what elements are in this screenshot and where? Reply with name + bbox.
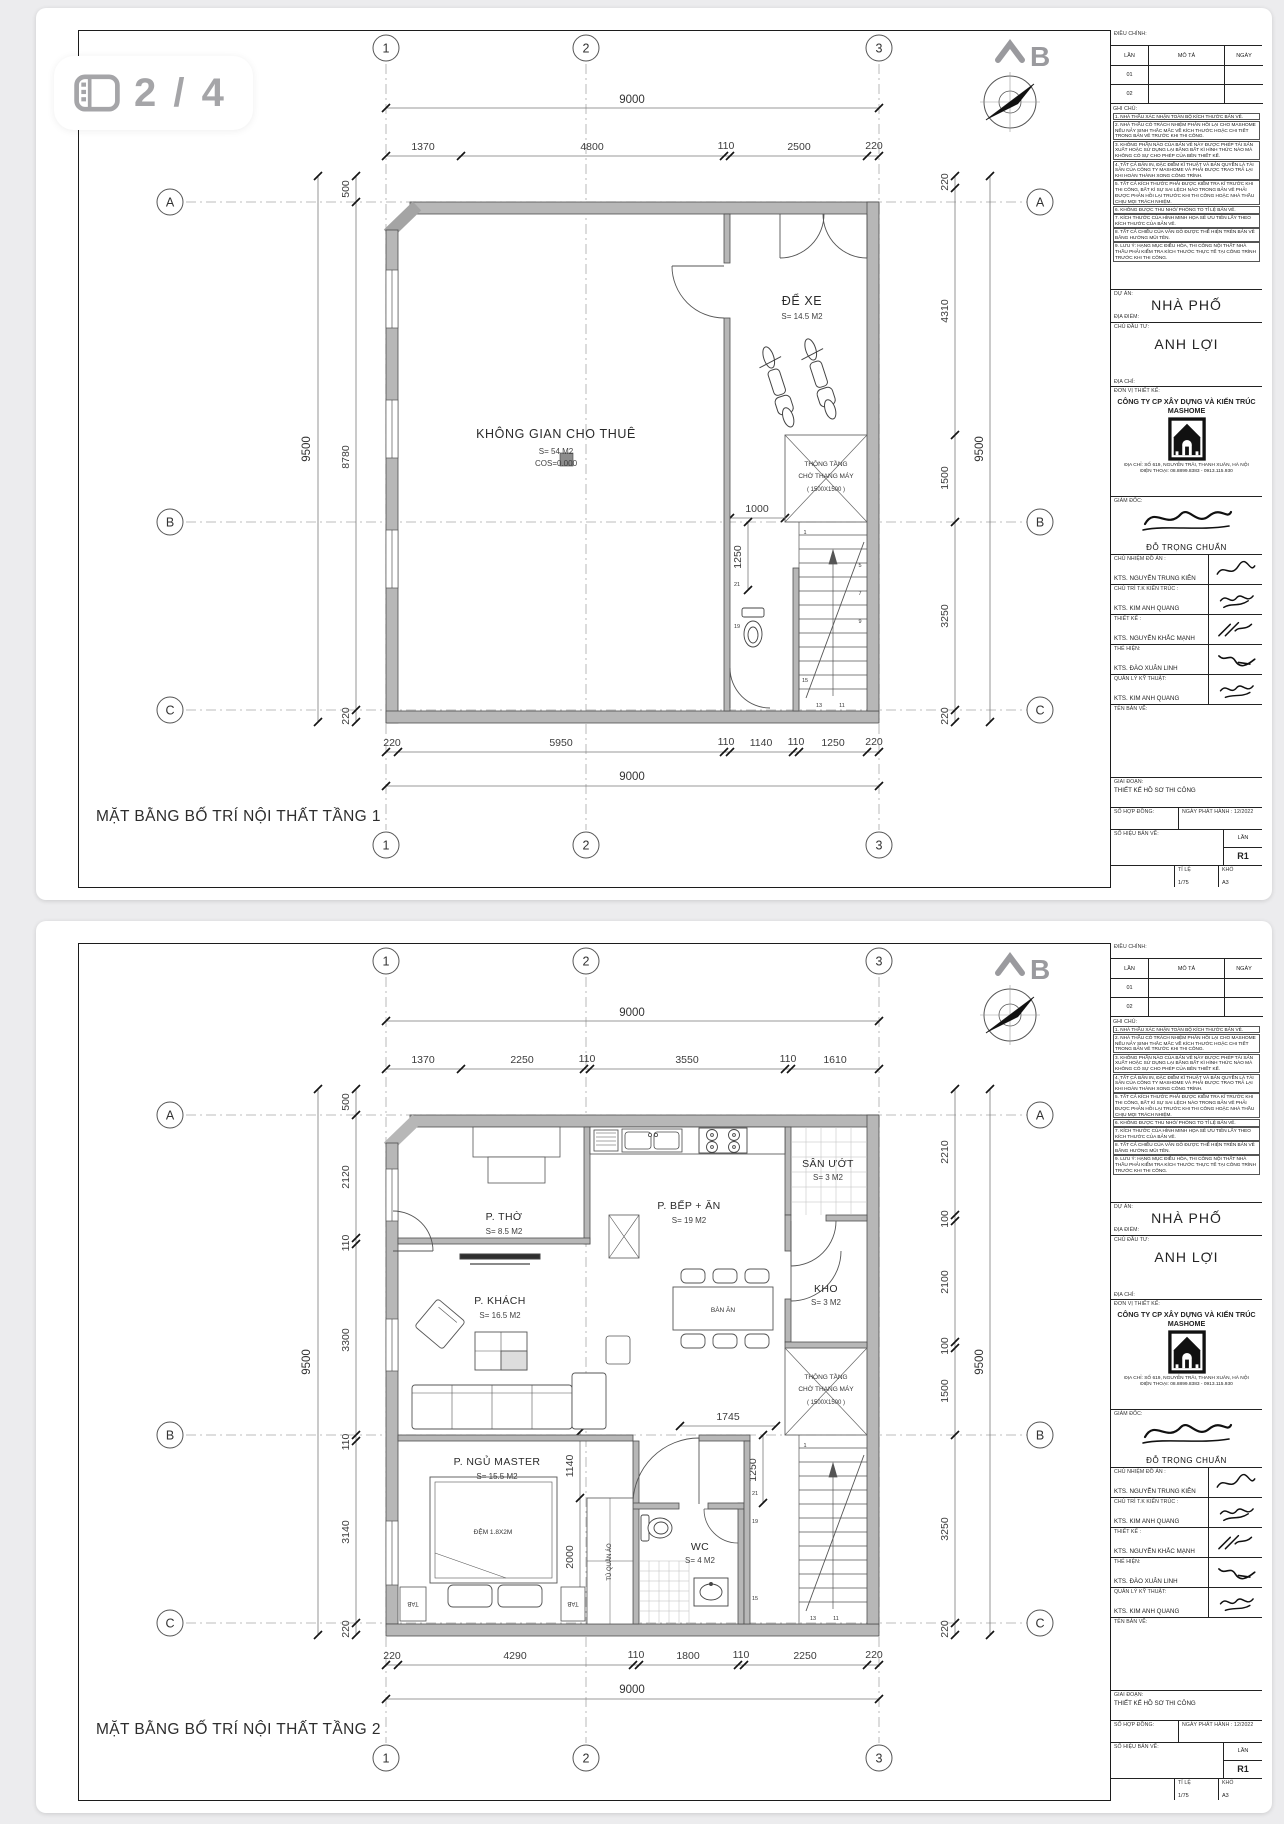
svg-text:S= 8.5 M2: S= 8.5 M2: [486, 1227, 523, 1236]
staff-role: THIẾT KẾ :: [1111, 615, 1208, 622]
director-section: GIÁM ĐỐC: ĐỖ TRỌNG CHUẨN: [1111, 1410, 1262, 1468]
drawing-no-label: SỐ HIỆU BẢN VẼ:: [1111, 830, 1224, 865]
dimension-labels: 9000 1370 4800 110 2500 220 9500 500 878…: [301, 94, 986, 783]
svg-text:A: A: [1036, 196, 1045, 210]
svg-text:B: B: [1036, 1429, 1044, 1443]
north-label: B: [1030, 41, 1050, 72]
rev-col-ngay: NGÀY: [1225, 46, 1263, 66]
svg-text:1250: 1250: [732, 545, 744, 569]
floor-plan-tang-2: 1 2 3 1 2 3 A B C A B C 9000 1370: [36, 921, 1272, 1813]
svg-text:7: 7: [858, 591, 861, 597]
rev-cell: [1149, 66, 1225, 85]
pages-icon: [74, 74, 120, 112]
svg-text:9500: 9500: [301, 436, 313, 462]
svg-text:A: A: [166, 196, 175, 210]
stairs: [799, 522, 867, 711]
staff-row: THIẾT KẾ : KTS. NGUYỄN KHẮC MẠNH: [1111, 615, 1262, 645]
mashome-logo-icon: [1168, 417, 1206, 461]
director-name: ĐỖ TRỌNG CHUẨN: [1111, 1456, 1262, 1465]
page-indicator[interactable]: 2 / 4: [54, 56, 253, 130]
title-block: ĐIỀU CHỈNH: LẦN MÔ TẢ NGÀY 01 02 GHI CHÚ…: [1110, 943, 1262, 1801]
svg-text:2: 2: [583, 839, 590, 853]
staff-signature: [1214, 679, 1258, 701]
svg-text:C: C: [1035, 1617, 1044, 1631]
rev-label: LẦN: [1224, 1743, 1262, 1761]
grid-bubbles: [157, 35, 1053, 858]
svg-text:1: 1: [803, 1443, 806, 1449]
paper-value: A3: [1222, 1793, 1229, 1799]
mashome-logo-icon: [1168, 1330, 1206, 1374]
svg-text:A: A: [1036, 1109, 1045, 1123]
designer-phone: ĐIỆN THOẠI: 08.8899.8383 - 0913.115.930: [1111, 469, 1262, 475]
director-section: GIÁM ĐỐC: ĐỖ TRỌNG CHUẨN: [1111, 497, 1262, 555]
svg-text:2: 2: [583, 1752, 590, 1766]
svg-text:3250: 3250: [939, 1517, 951, 1541]
project-label: DỰ ÁN:: [1111, 1203, 1262, 1210]
revision-table: LẦN MÔ TẢ NGÀY 01 02: [1111, 959, 1262, 1017]
drawing-name-label: TÊN BẢN VẼ:: [1111, 705, 1262, 712]
director-label: GIÁM ĐỐC:: [1111, 1410, 1262, 1417]
north-label: B: [1030, 954, 1050, 985]
svg-text:1500: 1500: [939, 1379, 951, 1403]
tv-console: [460, 1254, 540, 1264]
svg-text:CHỜ THANG MÁY: CHỜ THANG MÁY: [798, 1384, 854, 1393]
rev-cell: [1225, 979, 1263, 998]
svg-text:220: 220: [939, 173, 951, 191]
svg-text:KHO: KHO: [814, 1283, 838, 1295]
scale-label: TỈ LỆ: [1175, 1779, 1218, 1786]
note-item: 3. KHÔNG PHẦN NÀO CỦA BẢN VẼ NÀY ĐƯỢC PH…: [1113, 141, 1260, 160]
stage-section: GIAI ĐOẠN: THIẾT KẾ HỒ SƠ THI CÔNG: [1111, 1691, 1262, 1721]
svg-text:1610: 1610: [823, 1054, 847, 1066]
scale-row: TỈ LỆ 1/75 KHỔ A3: [1111, 1779, 1262, 1800]
svg-text:19: 19: [734, 624, 740, 630]
staff-name: KTS. KIM ANH QUANG: [1114, 1518, 1179, 1525]
svg-text:4800: 4800: [580, 141, 604, 153]
north-compass: B: [980, 954, 1050, 1045]
svg-text:220: 220: [865, 140, 883, 152]
svg-text:3: 3: [876, 955, 883, 969]
svg-text:ĐỂ XE: ĐỂ XE: [782, 293, 823, 308]
stairs: [799, 1435, 867, 1624]
staff-name: KTS. KIM ANH QUANG: [1114, 605, 1179, 612]
rev-cell: [1225, 998, 1263, 1017]
staff-role: CHỦ TRÌ T.K KIẾN TRÚC :: [1111, 1498, 1208, 1505]
sheet-page-1: 1 2 3 1 2 3 A B C A B C 9000: [36, 8, 1272, 900]
svg-text:TAB: TAB: [407, 1600, 418, 1606]
project-name: NHÀ PHỐ: [1111, 1210, 1262, 1226]
svg-text:THÔNG TẦNG: THÔNG TẦNG: [804, 1371, 847, 1381]
staff-signature: [1214, 1562, 1258, 1584]
svg-text:2250: 2250: [510, 1054, 534, 1066]
svg-text:TAB: TAB: [567, 1600, 578, 1606]
title-block: ĐIỀU CHỈNH: LẦN MÔ TẢ NGÀY 01 02 GHI CHÚ…: [1110, 30, 1262, 888]
side-table: [606, 1336, 630, 1364]
revision-header: ĐIỀU CHỈNH:: [1111, 943, 1262, 950]
tile-grid: [791, 1127, 867, 1215]
room-labels: KHÔNG GIAN CHO THUÊ S= 54 M2 COS=0.000 Đ…: [476, 293, 854, 493]
stage-section: GIAI ĐOẠN: THIẾT KẾ HỒ SƠ THI CÔNG: [1111, 778, 1262, 808]
staff-role: THỂ HIỆN:: [1111, 1558, 1208, 1565]
scale-label: TỈ LỆ: [1175, 866, 1218, 873]
svg-text:13: 13: [816, 703, 822, 709]
svg-text:100: 100: [939, 1210, 951, 1228]
svg-text:1: 1: [383, 1752, 390, 1766]
svg-text:2: 2: [583, 955, 590, 969]
svg-text:220: 220: [939, 1620, 951, 1638]
wc-tiles: [639, 1561, 689, 1624]
svg-text:COS=0.000: COS=0.000: [535, 459, 578, 468]
svg-text:500: 500: [340, 1093, 352, 1111]
svg-text:110: 110: [788, 736, 805, 748]
svg-text:P. NGỦ MASTER: P. NGỦ MASTER: [454, 1455, 541, 1468]
svg-text:110: 110: [579, 1053, 596, 1065]
svg-text:110: 110: [718, 736, 735, 748]
svg-text:21: 21: [734, 582, 740, 588]
note-item: 9. LƯU Ý: HẠNG MỤC ĐIỀU HÒA, THI CÔNG NỘ…: [1113, 1155, 1260, 1174]
svg-text:110: 110: [340, 1433, 352, 1450]
stage-value: THIẾT KẾ HỒ SƠ THI CÔNG: [1111, 785, 1262, 796]
svg-text:S= 14.5 M2: S= 14.5 M2: [781, 312, 823, 321]
revision-table: LẦN MÔ TẢ NGÀY 01 02: [1111, 46, 1262, 104]
note-item: 2. NHÀ THẦU CÓ TRÁCH NHIỆM PHẢN HỒI LẠI …: [1113, 1034, 1260, 1053]
contract-label: SỐ HỢP ĐỒNG:: [1111, 808, 1179, 829]
svg-text:15: 15: [752, 1596, 758, 1602]
staff-signature: [1214, 559, 1258, 581]
designer-label: ĐƠN VỊ THIẾT KẾ:: [1111, 1300, 1262, 1307]
rev-label: LẦN: [1224, 830, 1262, 848]
svg-text:5950: 5950: [549, 737, 573, 749]
svg-text:2: 2: [583, 42, 590, 56]
rev-col-mota: MÔ TẢ: [1149, 46, 1225, 66]
svg-text:3: 3: [876, 1752, 883, 1766]
staff-role: CHỦ TRÌ T.K KIẾN TRÚC :: [1111, 585, 1208, 592]
staff-role: THIẾT KẾ :: [1111, 1528, 1208, 1535]
grid-bubble-labels: 1 2 3 1 2 3 A B C A B C: [165, 42, 1044, 853]
fridge-icon: [609, 1215, 639, 1258]
staff-signature: [1214, 1532, 1258, 1554]
svg-text:4310: 4310: [939, 299, 951, 323]
svg-text:5: 5: [858, 563, 861, 569]
note-item: 7. KÍCH THƯỚC CỦA HÌNH MINH HỌA SẼ ƯU TI…: [1113, 214, 1260, 227]
wc-sink-icon: [694, 1578, 728, 1606]
paper-label: KHỔ: [1219, 1779, 1262, 1786]
scale-value: 1/75: [1178, 880, 1189, 886]
svg-text:110: 110: [628, 1649, 645, 1661]
bed: [430, 1477, 557, 1607]
drawing-no-label: SỐ HIỆU BẢN VẼ:: [1111, 1743, 1224, 1778]
svg-text:B: B: [166, 516, 174, 530]
svg-text:110: 110: [718, 140, 735, 152]
designer-phone: ĐIỆN THOẠI: 08.8899.8383 - 0913.115.930: [1111, 1382, 1262, 1388]
grid-bubble-labels: 1 2 3 1 2 3 A B C A B C: [165, 955, 1044, 1766]
svg-text:220: 220: [865, 1649, 883, 1661]
designer-label: ĐƠN VỊ THIẾT KẾ:: [1111, 387, 1262, 394]
staff-signature: [1214, 619, 1258, 641]
svg-text:KHÔNG GIAN CHO THUÊ: KHÔNG GIAN CHO THUÊ: [476, 426, 636, 441]
client-section: CHỦ ĐẦU TƯ: ANH LỢI ĐỊA CHỈ:: [1111, 1236, 1262, 1300]
client-name: ANH LỢI: [1111, 1249, 1262, 1265]
rev-cell: [1225, 66, 1263, 85]
staff-role: QUẢN LÝ KỸ THUẬT:: [1111, 1588, 1208, 1595]
designer-section: ĐƠN VỊ THIẾT KẾ: CÔNG TY CP XÂY DỰNG VÀ …: [1111, 1300, 1262, 1410]
note-item: 4. TẤT CẢ BẢN IN, ĐẶC ĐIỂM KĨ THUẬT VÀ B…: [1113, 1074, 1260, 1093]
svg-text:P. KHÁCH: P. KHÁCH: [474, 1294, 525, 1307]
svg-text:2000: 2000: [564, 1545, 576, 1569]
svg-text:9500: 9500: [974, 436, 986, 462]
svg-text:C: C: [1035, 704, 1044, 718]
drawing-name-label: TÊN BẢN VẼ:: [1111, 1618, 1262, 1625]
svg-text:3: 3: [876, 839, 883, 853]
rev-cell: [1225, 85, 1263, 104]
note-item: 3. KHÔNG PHẦN NÀO CỦA BẢN VẼ NÀY ĐƯỢC PH…: [1113, 1054, 1260, 1073]
staff-row: THỂ HIỆN: KTS. ĐÀO XUÂN LINH: [1111, 1558, 1262, 1588]
director-label: GIÁM ĐỐC:: [1111, 497, 1262, 504]
location-label: ĐỊA ĐIỂM:: [1111, 1226, 1262, 1233]
drawing-name-section: TÊN BẢN VẼ:: [1111, 705, 1262, 778]
designer-company: CÔNG TY CP XÂY DỰNG VÀ KIẾN TRÚC MASHOME: [1115, 397, 1258, 415]
sofa: [412, 1373, 606, 1429]
note-item: 6. KHÔNG ĐƯỢC THU NHỎ/ PHÓNG TO TỈ LỆ BẢ…: [1113, 206, 1260, 214]
director-name: ĐỖ TRỌNG CHUẨN: [1111, 543, 1262, 552]
svg-text:1370: 1370: [411, 1054, 435, 1066]
altar-cabinet: [473, 1127, 560, 1183]
project-label: DỰ ÁN:: [1111, 290, 1262, 297]
svg-text:220: 220: [865, 736, 883, 748]
svg-text:P. THỜ: P. THỜ: [486, 1210, 523, 1223]
svg-text:19: 19: [752, 1519, 758, 1525]
staff-name: KTS. ĐÀO XUÂN LINH: [1114, 665, 1178, 672]
svg-text:BÀN ĂN: BÀN ĂN: [711, 1305, 736, 1314]
rev-cell: [1149, 85, 1225, 104]
notes-header: GHI CHÚ:: [1113, 1018, 1260, 1025]
svg-text:1: 1: [383, 839, 390, 853]
client-label: CHỦ ĐẦU TƯ:: [1111, 323, 1262, 330]
rev-col-ngay: NGÀY: [1225, 959, 1263, 979]
svg-text:ĐỆM 1.8X2M: ĐỆM 1.8X2M: [474, 1527, 513, 1536]
svg-text:S= 15.5 M2: S= 15.5 M2: [476, 1472, 518, 1481]
svg-text:CHỜ THANG MÁY: CHỜ THANG MÁY: [798, 471, 854, 480]
document-viewer: 2 / 4 1 2 3 1 2 3 A B: [0, 0, 1284, 1824]
staff-signature: [1214, 649, 1258, 671]
svg-text:2250: 2250: [793, 1650, 817, 1662]
staff-role: THỂ HIỆN:: [1111, 645, 1208, 652]
note-item: 4. TẤT CẢ BẢN IN, ĐẶC ĐIỂM KĨ THUẬT VÀ B…: [1113, 161, 1260, 180]
svg-text:220: 220: [383, 737, 401, 749]
staff-role: CHỦ NHIỆM ĐỒ ÁN :: [1111, 1468, 1208, 1475]
staff-name: KTS. NGUYỄN TRUNG KIÊN: [1114, 575, 1196, 582]
svg-text:110: 110: [340, 1234, 352, 1251]
grid-bubbles: [157, 948, 1053, 1771]
svg-text:3140: 3140: [340, 1520, 352, 1544]
svg-text:THÔNG TẦNG: THÔNG TẦNG: [804, 458, 847, 468]
svg-text:9000: 9000: [619, 94, 645, 106]
svg-text:100: 100: [939, 1337, 951, 1355]
svg-text:1: 1: [383, 42, 390, 56]
rev-col-lan: LẦN: [1111, 46, 1149, 66]
stove-icon: [699, 1128, 747, 1153]
note-item: 5. TẤT CẢ KÍCH THƯỚC PHẢI ĐƯỢC KIỂM TRA …: [1113, 180, 1260, 205]
svg-text:13: 13: [810, 1616, 816, 1622]
svg-text:1370: 1370: [411, 141, 435, 153]
rev-cell: [1149, 979, 1225, 998]
designer-company: CÔNG TY CP XÂY DỰNG VÀ KIẾN TRÚC MASHOME: [1115, 1310, 1258, 1328]
staff-name: KTS. NGUYỄN KHẮC MẠNH: [1114, 1548, 1195, 1555]
staff-row: CHỦ TRÌ T.K KIẾN TRÚC : KTS. KIM ANH QUA…: [1111, 585, 1262, 615]
svg-text:9500: 9500: [301, 1349, 313, 1375]
drawing-no-row: SỐ HIỆU BẢN VẼ: LẦN R1: [1111, 1743, 1262, 1779]
director-signature: [1137, 1417, 1237, 1447]
client-address-label: ĐỊA CHỈ:: [1111, 1291, 1137, 1298]
armchair: [415, 1299, 466, 1350]
issue-date: NGÀY PHÁT HÀNH : 12/2022: [1179, 1721, 1262, 1742]
svg-text:3: 3: [876, 42, 883, 56]
svg-text:4290: 4290: [503, 1650, 527, 1662]
svg-text:2120: 2120: [340, 1165, 352, 1189]
plan-title: MẶT BẰNG BỐ TRÍ NỘI THẤT TẦNG 2: [96, 1721, 381, 1739]
svg-text:1140: 1140: [564, 1455, 576, 1478]
svg-text:S= 3 M2: S= 3 M2: [813, 1173, 844, 1182]
revision-section: ĐIỀU CHỈNH:: [1111, 943, 1262, 959]
toilet-icon: [742, 608, 764, 647]
client-section: CHỦ ĐẦU TƯ: ANH LỢI ĐỊA CHỈ:: [1111, 323, 1262, 387]
staff-row: QUẢN LÝ KỸ THUẬT: KTS. KIM ANH QUANG: [1111, 1588, 1262, 1618]
staff-row: QUẢN LÝ KỸ THUẬT: KTS. KIM ANH QUANG: [1111, 675, 1262, 705]
staff-signature: [1214, 1472, 1258, 1494]
svg-text:1: 1: [383, 955, 390, 969]
stage-label: GIAI ĐOẠN:: [1111, 778, 1262, 785]
rev-col-mota: MÔ TẢ: [1149, 959, 1225, 979]
staff-role: QUẢN LÝ KỸ THUẬT:: [1111, 675, 1208, 682]
scale-empty-cell: [1111, 866, 1175, 887]
staff-name: KTS. NGUYỄN TRUNG KIÊN: [1114, 1488, 1196, 1495]
staff-row: THIẾT KẾ : KTS. NGUYỄN KHẮC MẠNH: [1111, 1528, 1262, 1558]
svg-text:220: 220: [340, 1620, 352, 1638]
sheet-page-2: 1 2 3 1 2 3 A B C A B C 9000 1370: [36, 921, 1272, 1813]
svg-text:B: B: [1036, 516, 1044, 530]
rev-row-02: 02: [1111, 998, 1149, 1017]
staff-row: CHỦ NHIỆM ĐỒ ÁN : KTS. NGUYỄN TRUNG KIÊN: [1111, 1468, 1262, 1498]
svg-text:1745: 1745: [716, 1411, 740, 1423]
floor-plan-tang-1: 1 2 3 1 2 3 A B C A B C 9000: [36, 8, 1272, 900]
staff-signature: [1214, 589, 1258, 611]
svg-text:11: 11: [833, 1616, 839, 1622]
revision-section: ĐIỀU CHỈNH:: [1111, 30, 1262, 46]
scale-row: TỈ LỆ 1/75 KHỔ A3: [1111, 866, 1262, 887]
svg-text:S= 4 M2: S= 4 M2: [685, 1556, 716, 1565]
staff-name: KTS. KIM ANH QUANG: [1114, 1608, 1179, 1615]
svg-text:2210: 2210: [939, 1140, 951, 1164]
svg-text:S= 19 M2: S= 19 M2: [672, 1216, 707, 1225]
project-section: DỰ ÁN: NHÀ PHỐ ĐỊA ĐIỂM:: [1111, 1203, 1262, 1236]
rev-row-02: 02: [1111, 85, 1149, 104]
svg-text:2500: 2500: [787, 141, 811, 153]
svg-text:C: C: [165, 704, 174, 718]
svg-text:220: 220: [340, 707, 352, 725]
svg-text:1000: 1000: [745, 503, 769, 515]
project-name: NHÀ PHỐ: [1111, 297, 1262, 313]
staff-signature: [1214, 1592, 1258, 1614]
client-name: ANH LỢI: [1111, 336, 1262, 352]
contract-row: SỐ HỢP ĐỒNG: NGÀY PHÁT HÀNH : 12/2022: [1111, 1721, 1262, 1743]
scale-empty-cell: [1111, 1779, 1175, 1800]
svg-text:220: 220: [383, 1650, 401, 1662]
notes-section: GHI CHÚ: 1. NHÀ THẦU XÁC NHẬN TOÀN BỘ KÍ…: [1111, 1017, 1262, 1203]
staff-role: CHỦ NHIỆM ĐỒ ÁN :: [1111, 555, 1208, 562]
revision-header: ĐIỀU CHỈNH:: [1111, 30, 1262, 37]
rev-col-lan: LẦN: [1111, 959, 1149, 979]
note-item: 8. TẤT CẢ CHIỀU CỦA VÂN GỖ ĐƯỢC THỂ HIỆN…: [1113, 228, 1260, 241]
plan-title: MẶT BẰNG BỐ TRÍ NỘI THẤT TẦNG 1: [96, 808, 381, 826]
svg-text:2100: 2100: [939, 1270, 951, 1294]
svg-text:1250: 1250: [821, 737, 845, 749]
svg-text:TỦ QUẦN ÁO: TỦ QUẦN ÁO: [606, 1543, 613, 1581]
paper-value: A3: [1222, 880, 1229, 886]
window-glazing: [386, 270, 398, 588]
svg-text:9000: 9000: [619, 1007, 645, 1019]
staff-name: KTS. ĐÀO XUÂN LINH: [1114, 1578, 1178, 1585]
north-compass: B: [980, 41, 1050, 132]
note-item: 1. NHÀ THẦU XÁC NHẬN TOÀN BỘ KÍCH THƯỚC …: [1113, 113, 1260, 121]
svg-text:8780: 8780: [340, 445, 352, 469]
rev-value: R1: [1224, 1761, 1262, 1778]
kitchen-counter: [590, 1127, 785, 1154]
svg-text:S= 3 M2: S= 3 M2: [811, 1298, 842, 1307]
svg-text:15: 15: [802, 678, 808, 684]
rev-row-01: 01: [1111, 979, 1149, 998]
svg-text:9: 9: [858, 619, 861, 625]
location-label: ĐỊA ĐIỂM:: [1111, 313, 1262, 320]
svg-text:21: 21: [752, 1491, 758, 1497]
notes-section: GHI CHÚ: 1. NHÀ THẦU XÁC NHẬN TOÀN BỘ KÍ…: [1111, 104, 1262, 290]
staff-name: KTS. NGUYỄN KHẮC MẠNH: [1114, 635, 1195, 642]
nightstand: [400, 1587, 585, 1621]
rev-row-01: 01: [1111, 66, 1149, 85]
rev-value: R1: [1224, 848, 1262, 865]
note-item: 1. NHÀ THẦU XÁC NHẬN TOÀN BỘ KÍCH THƯỚC …: [1113, 1026, 1260, 1034]
paper-label: KHỔ: [1219, 866, 1262, 873]
svg-text:1: 1: [803, 530, 806, 536]
note-item: 5. TẤT CẢ KÍCH THƯỚC PHẢI ĐƯỢC KIỂM TRA …: [1113, 1093, 1260, 1118]
contract-label: SỐ HỢP ĐỒNG:: [1111, 1721, 1179, 1742]
svg-text:SÂN ƯỚT: SÂN ƯỚT: [802, 1157, 854, 1170]
staff-row: THỂ HIỆN: KTS. ĐÀO XUÂN LINH: [1111, 645, 1262, 675]
svg-text:S= 16.5 M2: S= 16.5 M2: [479, 1311, 521, 1320]
svg-text:3300: 3300: [340, 1328, 352, 1352]
svg-text:1140: 1140: [750, 737, 773, 749]
svg-text:11: 11: [839, 703, 845, 709]
client-address-label: ĐỊA CHỈ:: [1111, 378, 1137, 385]
staff-row: CHỦ TRÌ T.K KIẾN TRÚC : KTS. KIM ANH QUA…: [1111, 1498, 1262, 1528]
client-label: CHỦ ĐẦU TƯ:: [1111, 1236, 1262, 1243]
svg-text:A: A: [166, 1109, 175, 1123]
issue-date: NGÀY PHÁT HÀNH : 12/2022: [1179, 808, 1262, 829]
svg-text:WC: WC: [691, 1541, 709, 1553]
svg-text:C: C: [165, 1617, 174, 1631]
svg-text:P. BẾP + ĂN: P. BẾP + ĂN: [657, 1199, 720, 1212]
stair-numbers: 1 11 13 15 19 21: [752, 1443, 839, 1622]
note-item: 6. KHÔNG ĐƯỢC THU NHỎ/ PHÓNG TO TỈ LỆ BẢ…: [1113, 1119, 1260, 1127]
svg-text:9000: 9000: [619, 1684, 645, 1696]
contract-row: SỐ HỢP ĐỒNG: NGÀY PHÁT HÀNH : 12/2022: [1111, 808, 1262, 830]
note-item: 9. LƯU Ý: HẠNG MỤC ĐIỀU HÒA, THI CÔNG NỘ…: [1113, 242, 1260, 261]
motorbike-icon: [754, 343, 803, 430]
note-item: 2. NHÀ THẦU CÓ TRÁCH NHIỆM PHẢN HỒI LẠI …: [1113, 121, 1260, 140]
svg-text:500: 500: [340, 180, 352, 198]
stage-label: GIAI ĐOẠN:: [1111, 1691, 1262, 1698]
drawing-name-section: TÊN BẢN VẼ:: [1111, 1618, 1262, 1691]
staff-signature: [1214, 1502, 1258, 1524]
